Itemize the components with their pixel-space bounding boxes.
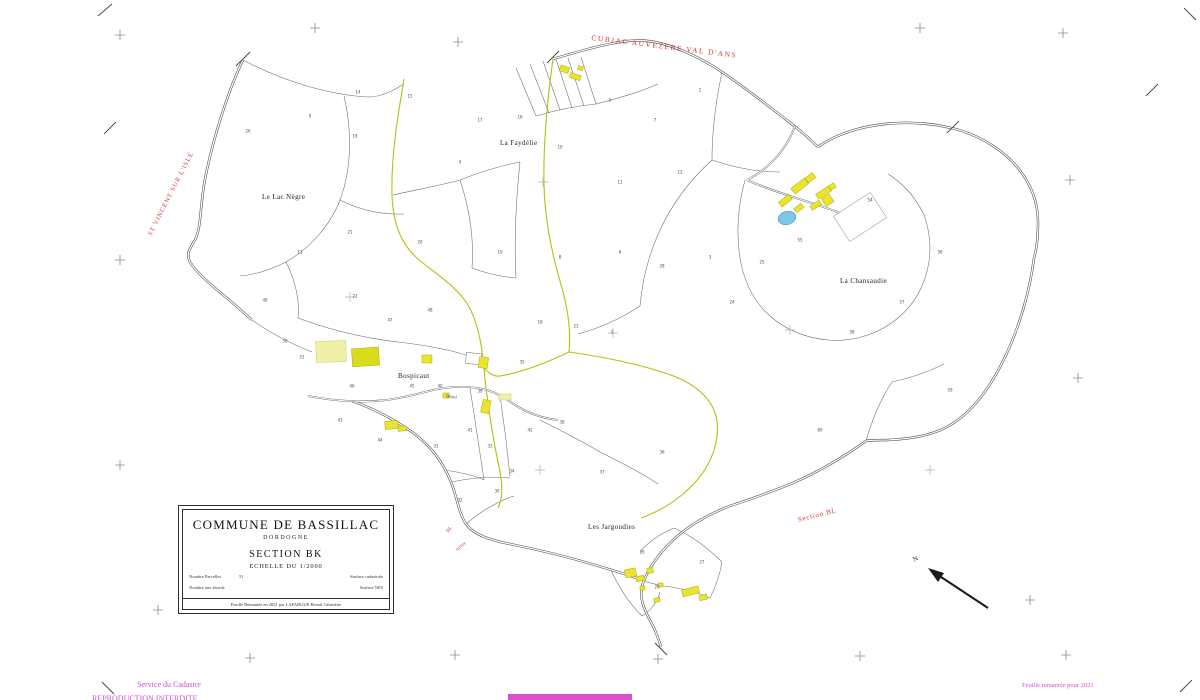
parcel-number: 15 xyxy=(407,94,412,99)
parcel-number: 14 xyxy=(355,90,360,95)
parcel-number: 21 xyxy=(347,230,352,235)
field-left1-label: Nombre Parcelles xyxy=(189,574,221,579)
parcel-number: 50 xyxy=(282,339,287,344)
parcel-number: 55 xyxy=(797,238,802,243)
parcel-number: 24 xyxy=(729,300,734,305)
parcel-number: 18 xyxy=(537,320,542,325)
parcel-number: 27 xyxy=(699,560,704,565)
parcel-number: 17 xyxy=(477,118,482,123)
parcel-number: 40 xyxy=(437,384,442,389)
parcel-number: 43 xyxy=(337,418,342,423)
parcel-number: 23 xyxy=(573,324,578,329)
place-le-lac-negre: Le Lac Nègre xyxy=(262,193,305,201)
parcel-number: 32 xyxy=(457,498,462,503)
parcel-number: 31 xyxy=(433,444,438,449)
parcel-number: 60 xyxy=(817,428,822,433)
parcel-number: 6 xyxy=(619,250,622,255)
title-block-inner-border: COMMUNE DE BASSILLAC DORDOGNE SECTION BK… xyxy=(182,509,390,610)
parcel-number: 18 xyxy=(352,134,357,139)
parcel-number: 11 xyxy=(617,180,622,185)
commune-title: COMMUNE DE BASSILLAC xyxy=(183,517,389,533)
parcel-number: 9 xyxy=(309,114,312,119)
place-bospicaut: Bospicaut xyxy=(398,372,430,380)
parcel-number: 48 xyxy=(427,308,432,313)
parcel-number: 49 xyxy=(262,298,267,303)
parcel-number: 26 xyxy=(639,550,644,555)
parcel-number: 39 xyxy=(477,389,482,394)
parcel-number: 12 xyxy=(677,170,682,175)
parcel-number: 29 xyxy=(654,585,659,590)
parcel-number: 44 xyxy=(377,438,382,443)
note-service-cadastre: Service du Cadastre xyxy=(137,680,201,689)
place-la-faydelie: La Faydélie xyxy=(500,139,538,147)
parcel-number: 51 xyxy=(299,355,304,360)
parcel-number: 33 xyxy=(487,444,492,449)
parcel-number: 25 xyxy=(759,260,764,265)
field-left2-label: Nombre aux abords xyxy=(189,585,225,590)
parcel-number: 41 xyxy=(467,428,472,433)
parcel-number: 57 xyxy=(899,300,904,305)
parcel-number: 28 xyxy=(659,264,664,269)
parcel-number: 45 xyxy=(409,384,414,389)
cadastral-map-sheet: 1415926181657410111213212019862832218232… xyxy=(0,0,1200,700)
place-les-jargoudies: Les Jargoudies xyxy=(588,523,635,531)
parcel-number: 2 xyxy=(611,330,614,335)
departement-label: DORDOGNE xyxy=(183,535,389,541)
parcel-number: 8 xyxy=(559,255,562,260)
parcel-number: 56 xyxy=(937,250,942,255)
parcel-number: 13 xyxy=(297,250,302,255)
parcel-number: 58 xyxy=(849,330,854,335)
parcel-number: 19 xyxy=(497,250,502,255)
footer-highlight-bar xyxy=(508,694,632,700)
place-la-chansaudie: La Chansaudie xyxy=(840,277,887,285)
parcel-number: 42 xyxy=(527,428,532,433)
parcel-number: 59 xyxy=(947,388,952,393)
parcel-number: 35 xyxy=(519,360,524,365)
parcel-number: 5 xyxy=(609,98,612,103)
parcel-number: 36 xyxy=(659,450,664,455)
parcel-number: 54 xyxy=(867,198,872,203)
parcel-number: 47 xyxy=(387,318,392,323)
field-left1-value: 51 xyxy=(239,574,244,579)
parcel-number: 3 xyxy=(709,255,712,260)
note-feuille-remaniee: Feuille remaniée pour 2021 xyxy=(1022,682,1094,689)
note-reproduction-interdite: REPRODUCTION INTERDITE xyxy=(92,694,198,700)
field-right1-label: Surface cadastrale xyxy=(350,574,383,579)
section-label: SECTION BK xyxy=(183,549,389,560)
parcel-number: 1 xyxy=(699,88,702,93)
parcel-number: 38 xyxy=(559,420,564,425)
parcel-number: 22 xyxy=(352,294,357,299)
title-block-fields: Nombre Parcelles 51 Surface cadastrale N… xyxy=(189,574,383,596)
parcel-number: 37 xyxy=(599,470,604,475)
parcel-number: 10 xyxy=(557,145,562,150)
parcel-number: 46 xyxy=(349,384,354,389)
parcel-number: 30 xyxy=(494,489,499,494)
parcel-number: 16 xyxy=(517,115,522,120)
parcel-number: 34 xyxy=(509,469,514,474)
field-right2-label: Surface NFS xyxy=(360,585,383,590)
parcel-number: 7 xyxy=(654,118,657,123)
parcel-number: 20 xyxy=(417,240,422,245)
title-block: COMMUNE DE BASSILLAC DORDOGNE SECTION BK… xyxy=(178,505,394,614)
parcel-number: 26 xyxy=(245,129,250,134)
title-block-footer: Feuille Remaniée en 2021 par LAFARGUE Be… xyxy=(183,598,389,609)
parcel-number: 4 xyxy=(459,160,462,165)
scale-label: ECHELLE DU 1/2000 xyxy=(183,563,389,570)
